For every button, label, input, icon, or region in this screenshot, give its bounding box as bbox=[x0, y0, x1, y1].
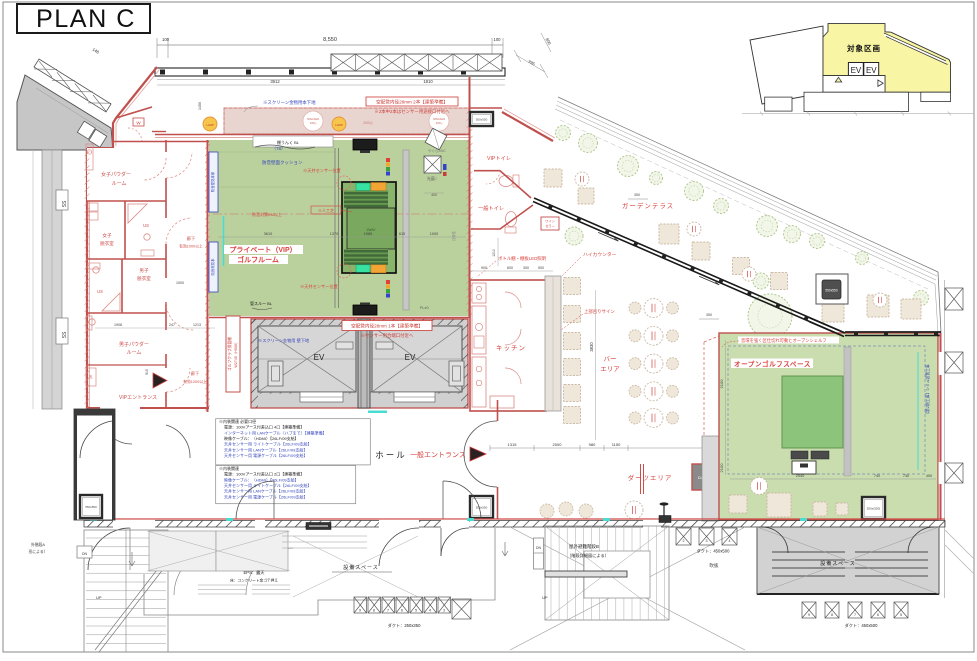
svg-text:ボトル棚・棚板LED照明: ボトル棚・棚板LED照明 bbox=[498, 255, 547, 262]
svg-text:バー: バー bbox=[604, 355, 617, 363]
svg-text:550x550: 550x550 bbox=[476, 505, 488, 509]
svg-text:600: 600 bbox=[507, 266, 513, 270]
svg-text:9: 9 bbox=[808, 613, 810, 617]
svg-text:日像性: 日像性 bbox=[451, 230, 456, 241]
svg-text:100: 100 bbox=[494, 37, 502, 42]
svg-text:DN: DN bbox=[536, 546, 541, 550]
svg-text:2000: 2000 bbox=[553, 442, 563, 447]
svg-text:廊下: 廊下 bbox=[187, 235, 195, 242]
svg-text:電源：100Vアース付差込口 4口【建築準備】: 電源：100Vアース付差込口 4口【建築準備】 bbox=[224, 424, 304, 430]
svg-text:ゴルフルーム: ゴルフルーム bbox=[237, 255, 279, 264]
svg-text:EV: EV bbox=[314, 353, 325, 362]
svg-text:4: 4 bbox=[729, 539, 731, 543]
svg-text:棚うんく BL: 棚うんく BL bbox=[277, 139, 300, 145]
svg-text:有効1200以上: 有効1200以上 bbox=[183, 379, 207, 384]
svg-text:ハイカウンター: ハイカウンター bbox=[583, 251, 617, 258]
svg-text:【第2期工事】シミュ設置工事: 【第2期工事】シミュ設置工事 bbox=[925, 364, 930, 416]
svg-text:1210: 1210 bbox=[492, 249, 496, 257]
svg-text:US: US bbox=[97, 289, 103, 294]
svg-text:インターネット用 LANケーブル（ハブまで）【建築準備】: インターネット用 LANケーブル（ハブまで）【建築準備】 bbox=[224, 429, 327, 435]
svg-text:200以: 200以 bbox=[363, 121, 373, 125]
svg-text:400: 400 bbox=[431, 193, 437, 197]
svg-text:光庭□: 光庭□ bbox=[427, 176, 438, 181]
svg-text:EV: EV bbox=[851, 66, 862, 75]
svg-text:DN: DN bbox=[82, 552, 88, 556]
svg-text:※センサー用合端口付近へ: ※センサー用合端口付近へ bbox=[361, 332, 414, 339]
svg-text:脱衣室: 脱衣室 bbox=[100, 240, 114, 247]
svg-text:2100: 2100 bbox=[719, 463, 724, 473]
svg-text:電源：100Vアース付差込口 2口【建築準備】: 電源：100Vアース付差込口 2口【建築準備】 bbox=[224, 471, 304, 477]
svg-text:天井センサー用 LANケーブル【26LF/09支給】: 天井センサー用 LANケーブル【26LF/09支給】 bbox=[224, 488, 307, 494]
svg-text:SS: SS bbox=[62, 331, 68, 338]
svg-text:上部呂りサイン: 上部呂りサイン bbox=[584, 308, 615, 315]
svg-text:ゴルフクラブ保管棚: ゴルフクラブ保管棚 bbox=[227, 337, 232, 371]
svg-text:キッチン: キッチン bbox=[496, 344, 526, 352]
svg-text:300ǈ: 300ǈ bbox=[310, 121, 317, 125]
svg-text:男子: 男子 bbox=[139, 267, 149, 274]
svg-text:ダクト：450x500: ダクト：450x500 bbox=[845, 622, 878, 629]
svg-text:廊下: 廊下 bbox=[191, 370, 199, 377]
svg-text:ワイン: ワイン bbox=[545, 219, 555, 224]
svg-text:LAMP: LAMP bbox=[206, 123, 214, 127]
svg-text:天井センサー用 ライトケーブル【26LF/09支給】: 天井センサー用 ライトケーブル【26LF/09支給】 bbox=[224, 441, 312, 447]
svg-text:※天井センサー位置: ※天井センサー位置 bbox=[303, 167, 341, 174]
svg-text:450: 450 bbox=[926, 474, 932, 478]
svg-text:VIPトイレ: VIPトイレ bbox=[487, 156, 511, 162]
svg-text:3830: 3830 bbox=[589, 342, 594, 352]
svg-text:設備スペース: 設備スペース bbox=[343, 564, 378, 571]
svg-text:PLAN C: PLAN C bbox=[36, 5, 136, 33]
svg-text:ルーム: ルーム bbox=[127, 350, 142, 356]
svg-text:550x550: 550x550 bbox=[825, 289, 837, 293]
svg-text:※内装関連 必要口径: ※内装関連 必要口径 bbox=[219, 418, 256, 424]
svg-text:550x550: 550x550 bbox=[476, 117, 488, 121]
svg-text:8: 8 bbox=[831, 613, 833, 617]
svg-text:615: 615 bbox=[399, 232, 405, 236]
svg-text:9: 9 bbox=[359, 609, 361, 613]
svg-text:空配管内径28mm 1本【建築準備】: 空配管内径28mm 1本【建築準備】 bbox=[351, 323, 423, 330]
svg-text:3912: 3912 bbox=[270, 79, 280, 84]
svg-text:1315: 1315 bbox=[508, 442, 518, 447]
svg-text:ガーデンテラス: ガーデンテラス bbox=[622, 201, 674, 210]
svg-text:2100: 2100 bbox=[719, 379, 724, 389]
svg-text:やぐらANC: やぐらANC bbox=[428, 148, 446, 153]
svg-text:6: 6 bbox=[877, 613, 879, 617]
svg-text:6: 6 bbox=[401, 609, 403, 613]
svg-text:7: 7 bbox=[387, 609, 389, 613]
svg-text:FL±0: FL±0 bbox=[420, 306, 429, 310]
svg-text:1213: 1213 bbox=[193, 323, 201, 327]
svg-text:W2745（H500）: W2745（H500） bbox=[233, 340, 238, 367]
svg-text:8,550: 8,550 bbox=[323, 37, 337, 43]
svg-text:8: 8 bbox=[373, 609, 375, 613]
svg-text:管スルー BL: 管スルー BL bbox=[250, 300, 273, 306]
svg-text:対象区画: 対象区画 bbox=[846, 43, 881, 53]
svg-text:（階段詳細図による）: （階段詳細図による） bbox=[567, 552, 609, 559]
svg-text:空配管内径28mm 2本【建築準備】: 空配管内径28mm 2本【建築準備】 bbox=[376, 99, 448, 106]
svg-text:EV: EV bbox=[405, 353, 416, 362]
svg-text:EV: EV bbox=[866, 66, 877, 75]
svg-text:900: 900 bbox=[481, 266, 487, 270]
svg-text:730: 730 bbox=[903, 474, 909, 478]
svg-text:4: 4 bbox=[429, 609, 431, 613]
svg-text:300ǈ: 300ǈ bbox=[436, 121, 443, 125]
svg-text:ダーツエリア: ダーツエリア bbox=[628, 473, 673, 482]
svg-text:音環を強く区仕切れ可動とオープンシェルフ: 音環を強く区仕切れ可動とオープンシェルフ bbox=[741, 337, 827, 344]
svg-text:一般エントランス: 一般エントランス bbox=[410, 450, 466, 459]
svg-text:設備スペース: 設備スペース bbox=[820, 560, 855, 567]
svg-text:1450: 1450 bbox=[198, 102, 202, 110]
svg-text:プライベート（VIP）: プライベート（VIP） bbox=[229, 245, 296, 254]
svg-text:UP: UP bbox=[542, 595, 548, 600]
svg-text:VIPエントランス: VIPエントランス bbox=[119, 395, 157, 401]
svg-text:ダクト：250x350: ダクト：250x350 bbox=[388, 622, 421, 629]
svg-text:SPEAKER: SPEAKER bbox=[433, 117, 445, 121]
svg-text:一般トイレ: 一般トイレ bbox=[478, 204, 504, 212]
svg-text:男子パウダー: 男子パウダー bbox=[119, 341, 149, 348]
svg-text:1370: 1370 bbox=[330, 232, 338, 236]
svg-text:ルーム: ルーム bbox=[112, 181, 127, 187]
svg-text:※人工芝: ※人工芝 bbox=[318, 207, 334, 213]
svg-text:500: 500 bbox=[538, 266, 544, 270]
svg-text:7: 7 bbox=[854, 613, 856, 617]
svg-text:防音壁面クッション: 防音壁面クッション bbox=[262, 159, 303, 166]
svg-text:UP: UP bbox=[96, 595, 102, 600]
svg-text:1000: 1000 bbox=[176, 281, 184, 285]
svg-text:5: 5 bbox=[900, 613, 902, 617]
svg-text:エリア: エリア bbox=[600, 365, 620, 373]
svg-text:有効1000以上: 有効1000以上 bbox=[179, 244, 203, 249]
svg-text:天井センサー用 LANケーブル【26LF/09支給】: 天井センサー用 LANケーブル【26LF/09支給】 bbox=[224, 446, 307, 452]
svg-text:オープンゴルフスペース: オープンゴルフスペース bbox=[734, 360, 811, 369]
svg-text:3: 3 bbox=[706, 539, 708, 543]
svg-text:100: 100 bbox=[162, 37, 170, 42]
svg-text:300: 300 bbox=[523, 266, 529, 270]
svg-text:吸音材見本: 吸音材見本 bbox=[210, 258, 215, 276]
svg-text:1810: 1810 bbox=[423, 79, 433, 84]
svg-text:SS: SS bbox=[62, 200, 68, 207]
svg-text:天井センサー用 電源ケーブル【26LF/09支給】: 天井センサー用 電源ケーブル【26LF/09支給】 bbox=[224, 452, 308, 458]
svg-text:※スクリーン金物用本下地: ※スクリーン金物用本下地 bbox=[263, 99, 316, 106]
svg-text:550x(550): 550x(550) bbox=[867, 506, 881, 510]
svg-text:247: 247 bbox=[169, 323, 175, 327]
svg-text:セラー: セラー bbox=[545, 224, 555, 229]
svg-text:3: 3 bbox=[443, 609, 445, 613]
svg-text:女子パウダー: 女子パウダー bbox=[101, 171, 131, 178]
svg-text:1150: 1150 bbox=[612, 442, 621, 447]
svg-text:ダクト：450x500: ダクト：450x500 bbox=[697, 548, 730, 555]
svg-text:映像ケーブル：（HDMI）【26LF/09支給】: 映像ケーブル：（HDMI）【26LF/09支給】 bbox=[224, 476, 299, 482]
svg-text:※スクリーン金物用 壁下地: ※スクリーン金物用 壁下地 bbox=[258, 337, 310, 344]
svg-text:外階段A: 外階段A bbox=[31, 542, 45, 547]
svg-text:※天井センサー位置: ※天井センサー位置 bbox=[300, 283, 338, 290]
svg-text:US: US bbox=[143, 223, 149, 228]
svg-text:3610: 3610 bbox=[264, 232, 272, 236]
svg-text:女子: 女子 bbox=[102, 232, 112, 239]
svg-text:形による）: 形による） bbox=[29, 549, 48, 554]
svg-text:ホール: ホール bbox=[375, 450, 407, 460]
svg-text:※2本中2本はセンサー用途接口付近へ: ※2本中2本はセンサー用途接口付近へ bbox=[374, 108, 450, 115]
svg-text:1985: 1985 bbox=[364, 232, 372, 236]
svg-text:床：コンクリート金ゴテ押え: 床：コンクリート金ゴテ押え bbox=[230, 578, 278, 583]
svg-text:屋外避難階段B: 屋外避難階段B bbox=[569, 543, 599, 550]
svg-text:SPEAKER: SPEAKER bbox=[307, 117, 319, 121]
svg-text:防音対策KM以上: 防音対策KM以上 bbox=[252, 211, 282, 217]
svg-text:550x550: 550x550 bbox=[85, 505, 97, 509]
svg-text:天井センサー用 電源ケーブル【26LF/09支給】: 天井センサー用 電源ケーブル【26LF/09支給】 bbox=[224, 493, 308, 499]
svg-text:915: 915 bbox=[145, 369, 149, 375]
svg-text:脱衣室: 脱衣室 bbox=[137, 275, 151, 282]
svg-text:5: 5 bbox=[415, 609, 417, 613]
svg-text:350: 350 bbox=[706, 313, 712, 317]
svg-text:防音壁見本帰: 防音壁見本帰 bbox=[210, 171, 215, 192]
svg-text:吹抜: 吹抜 bbox=[710, 562, 719, 569]
svg-text:1000: 1000 bbox=[430, 232, 438, 236]
svg-text:※内装関連: ※内装関連 bbox=[219, 465, 239, 471]
svg-text:1908: 1908 bbox=[114, 323, 122, 327]
svg-text:天井センサー用 ライトケーブル【26LF/09支給】: 天井センサー用 ライトケーブル【26LF/09支給】 bbox=[224, 482, 312, 488]
svg-text:980: 980 bbox=[589, 442, 596, 447]
svg-text:2540: 2540 bbox=[796, 474, 804, 478]
svg-text:740: 740 bbox=[874, 474, 880, 478]
svg-text:（TB）: （TB） bbox=[272, 146, 285, 151]
svg-text:映像ケーブル：（HDMI）【26LF/09支給】: 映像ケーブル：（HDMI）【26LF/09支給】 bbox=[224, 435, 299, 441]
svg-text:LAMP: LAMP bbox=[335, 123, 343, 127]
svg-text:2: 2 bbox=[683, 539, 685, 543]
svg-text:350: 350 bbox=[634, 193, 640, 197]
